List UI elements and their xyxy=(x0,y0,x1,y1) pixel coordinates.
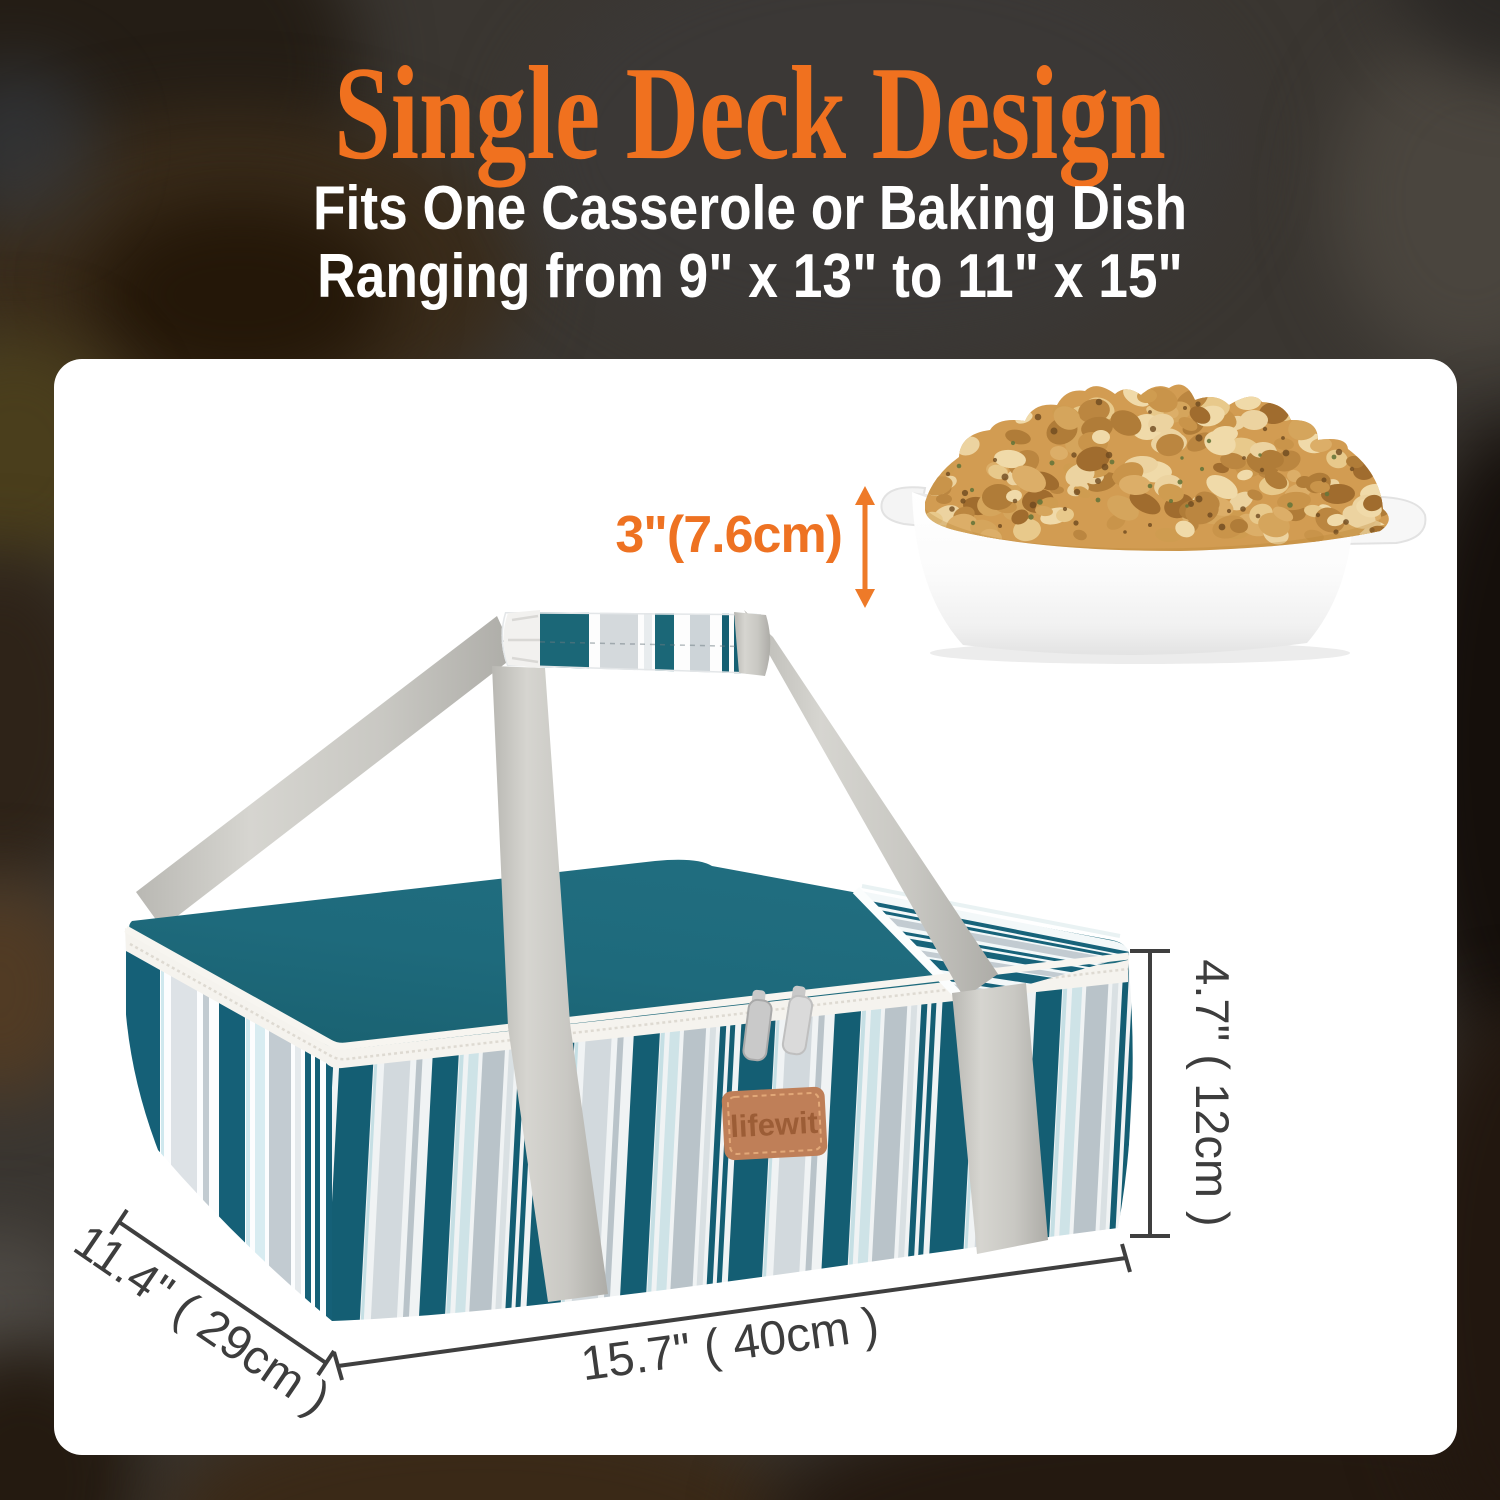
svg-text:4.7" ( 12cm ): 4.7" ( 12cm ) xyxy=(1186,959,1239,1226)
svg-text:3"(7.6cm): 3"(7.6cm) xyxy=(615,506,842,564)
svg-text:lifewit: lifewit xyxy=(729,1105,819,1145)
